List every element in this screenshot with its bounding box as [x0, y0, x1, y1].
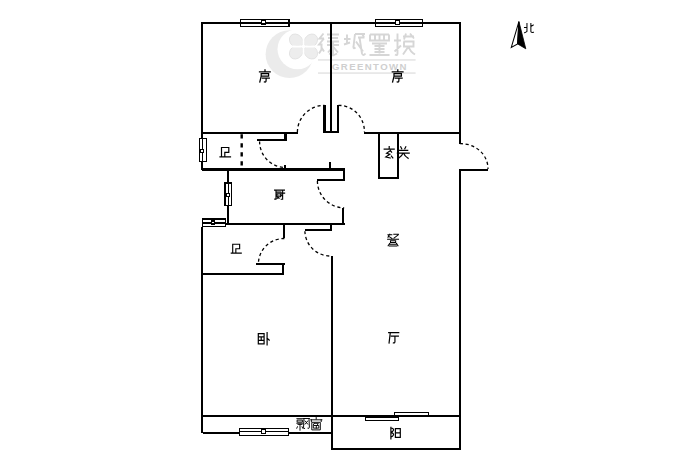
svg-text:GREENTOWN: GREENTOWN — [332, 61, 408, 72]
